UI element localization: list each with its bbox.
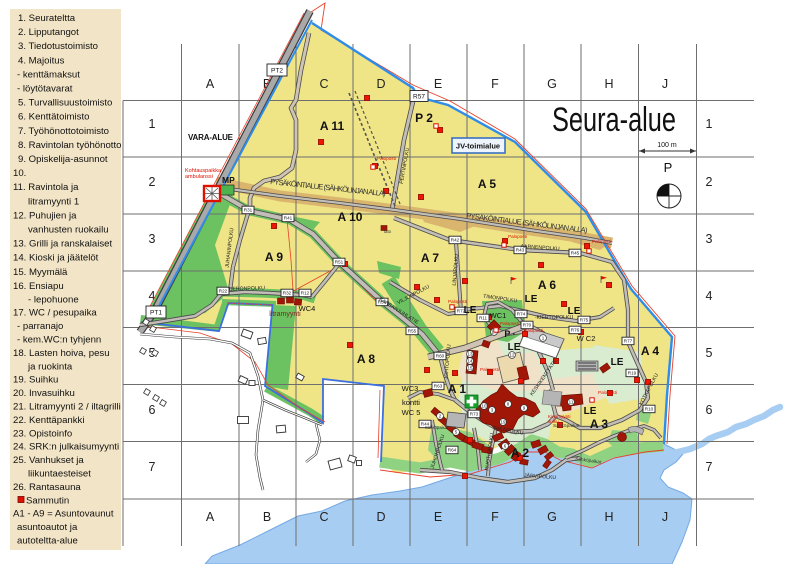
svg-text:vanhusten ruokailu: vanhusten ruokailu: [28, 225, 109, 236]
svg-text:VARA-ALUE: VARA-ALUE: [188, 133, 234, 142]
svg-text:R32: R32: [283, 291, 292, 296]
svg-text:R70: R70: [523, 323, 532, 328]
svg-text:PT2: PT2: [271, 67, 283, 74]
svg-text:ja ruokinta: ja ruokinta: [27, 361, 73, 372]
svg-text:C: C: [319, 77, 328, 91]
svg-text:R75: R75: [580, 318, 589, 323]
svg-text:A 1: A 1: [448, 382, 467, 396]
svg-text:D: D: [376, 77, 385, 91]
svg-text:G: G: [547, 77, 557, 91]
svg-text:1. Seurateltta: 1. Seurateltta: [18, 13, 76, 24]
svg-text:R11: R11: [479, 316, 488, 321]
svg-text:E: E: [434, 77, 442, 91]
svg-text:7: 7: [706, 460, 713, 474]
svg-text:2. Lipputangot: 2. Lipputangot: [18, 27, 79, 38]
svg-text:15: 15: [467, 366, 473, 371]
svg-text:2: 2: [706, 175, 713, 189]
svg-text:Paloposti: Paloposti: [500, 321, 519, 326]
svg-text:litramyynti 1: litramyynti 1: [28, 196, 79, 207]
svg-text:Paloposti: Paloposti: [598, 390, 617, 395]
svg-text:R12: R12: [301, 291, 310, 296]
svg-text:7. Työhönottotoimisto: 7. Työhönottotoimisto: [18, 126, 109, 137]
svg-text:A 4: A 4: [641, 344, 660, 358]
svg-text:Sähköpaikat: Sähköpaikat: [425, 425, 449, 430]
svg-text:21. Litramyynti 2 / iltagrilli: 21. Litramyynti 2 / iltagrilli: [13, 402, 121, 413]
svg-text:19. Suihku: 19. Suihku: [13, 375, 58, 386]
svg-text:Paloposti: Paloposti: [592, 239, 611, 244]
svg-text:- kem.WC:n tyhjenn: - kem.WC:n tyhjenn: [17, 335, 101, 346]
svg-text:19: 19: [500, 420, 506, 425]
svg-text:R64: R64: [448, 448, 457, 453]
svg-text:R74: R74: [517, 312, 526, 317]
svg-text:14: 14: [467, 359, 473, 364]
svg-text:WC1: WC1: [490, 311, 507, 320]
svg-text:A 5: A 5: [478, 177, 497, 191]
svg-text:Sähköpaikat: Sähköpaikat: [553, 423, 580, 429]
svg-text:F: F: [491, 510, 499, 524]
svg-text:R63: R63: [434, 384, 443, 389]
svg-text:Paloposti: Paloposti: [448, 299, 467, 304]
svg-text:R60: R60: [436, 354, 445, 359]
svg-text:3: 3: [149, 232, 156, 246]
svg-text:- löytötavarat: - löytötavarat: [17, 84, 73, 95]
svg-text:P ·: P ·: [504, 329, 515, 339]
svg-text:26. Rantasauna: 26. Rantasauna: [13, 482, 81, 493]
svg-text:6. Kenttätoimisto: 6. Kenttätoimisto: [18, 112, 89, 123]
svg-text:9. Opiskelija-asunnot: 9. Opiskelija-asunnot: [18, 154, 108, 165]
svg-text:A 6: A 6: [538, 278, 557, 292]
svg-text:JV-toimialue: JV-toimialue: [456, 142, 500, 151]
svg-text:B: B: [263, 510, 271, 524]
svg-text:Paloposti: Paloposti: [524, 328, 543, 333]
svg-text:A 2: A 2: [511, 446, 530, 460]
svg-text:MP: MP: [222, 175, 235, 185]
svg-text:4: 4: [706, 289, 713, 303]
svg-text:A: A: [206, 510, 215, 524]
svg-text:·KIERTOPOLKU: ·KIERTOPOLKU: [535, 315, 574, 321]
svg-text:8. Ravintolan työhönotto: 8. Ravintolan työhönotto: [18, 140, 121, 151]
svg-text:- kenttämaksut: - kenttämaksut: [17, 69, 80, 80]
svg-text:R45: R45: [571, 251, 580, 256]
svg-text:12. Puhujien ja: 12. Puhujien ja: [13, 210, 77, 221]
svg-text:H: H: [604, 77, 613, 91]
svg-text:P: P: [664, 160, 673, 175]
svg-text:1: 1: [149, 117, 156, 131]
svg-text:13. Grilli ja ranskalaiset: 13. Grilli ja ranskalaiset: [13, 239, 113, 250]
svg-text:4. Majoitus: 4. Majoitus: [18, 55, 65, 66]
svg-text:R22: R22: [219, 289, 228, 294]
svg-text:WC4: WC4: [299, 304, 316, 313]
svg-text:20. Invasuihku: 20. Invasuihku: [13, 388, 75, 399]
svg-text:LE: LE: [525, 294, 538, 305]
svg-text:R73: R73: [470, 412, 479, 417]
svg-text:H: H: [604, 510, 613, 524]
svg-text:A 9: A 9: [265, 250, 284, 264]
svg-text:R42: R42: [451, 238, 460, 243]
svg-text:11: 11: [569, 400, 574, 405]
svg-text:litramyynti: litramyynti: [269, 311, 301, 318]
svg-text:14. Kioski ja jäätelöt: 14. Kioski ja jäätelöt: [13, 253, 99, 264]
svg-text:24. SRK:n julkaisumyynti: 24. SRK:n julkaisumyynti: [13, 442, 119, 453]
svg-text:12: 12: [509, 353, 515, 358]
svg-text:E: E: [434, 510, 442, 524]
svg-text:kontti: kontti: [402, 398, 420, 407]
svg-text:A: A: [206, 77, 215, 91]
svg-text:7: 7: [149, 460, 156, 474]
svg-text:R77: R77: [624, 339, 633, 344]
svg-text:A 8: A 8: [357, 352, 376, 366]
svg-text:J: J: [662, 510, 668, 524]
svg-text:WC 5: WC 5: [402, 408, 421, 417]
svg-text:R55: R55: [408, 329, 417, 334]
svg-text:18. Lasten hoiva, pesu: 18. Lasten hoiva, pesu: [13, 348, 110, 359]
svg-text:WC3: WC3: [402, 384, 419, 393]
svg-text:autoteltta-alue: autoteltta-alue: [17, 536, 78, 547]
svg-text:6: 6: [149, 403, 156, 417]
svg-text:10.: 10.: [13, 168, 26, 179]
svg-text:5. Turvallisuustoimisto: 5. Turvallisuustoimisto: [18, 98, 112, 109]
svg-text:R19: R19: [628, 371, 637, 376]
svg-text:4: 4: [149, 289, 156, 303]
svg-text:A 11: A 11: [320, 119, 345, 133]
svg-text:D: D: [376, 510, 385, 524]
svg-text:10: 10: [481, 404, 487, 409]
svg-text:EERONPOLKU: EERONPOLKU: [229, 285, 265, 292]
svg-text:23. Opistoinfo: 23. Opistoinfo: [13, 428, 72, 439]
svg-text:LE: LE: [611, 357, 624, 368]
svg-text:Paloposti: Paloposti: [508, 234, 527, 239]
svg-text:ambulanssi: ambulanssi: [185, 174, 213, 180]
svg-text:tato: tato: [384, 229, 392, 234]
svg-text:25. Vanhukset ja: 25. Vanhukset ja: [13, 455, 84, 466]
svg-text:- parranajo: - parranajo: [17, 321, 63, 332]
svg-text:2: 2: [149, 175, 156, 189]
svg-text:16. Ensiapu: 16. Ensiapu: [13, 281, 64, 292]
svg-text:asuntoautot ja: asuntoautot ja: [17, 522, 78, 533]
svg-text:R10: R10: [645, 407, 654, 412]
svg-text:F: F: [491, 77, 499, 91]
svg-text:R57: R57: [413, 93, 425, 100]
svg-text:13: 13: [467, 352, 473, 357]
svg-text:LE: LE: [464, 305, 477, 316]
svg-text:liikuntaesteiset: liikuntaesteiset: [28, 469, 91, 480]
svg-text:LE: LE: [584, 406, 597, 417]
svg-text:Paloposti: Paloposti: [377, 156, 396, 161]
svg-text:P 2: P 2: [415, 111, 433, 125]
svg-text:PT1: PT1: [150, 309, 162, 316]
svg-text:R31: R31: [244, 208, 253, 213]
svg-text:6: 6: [706, 403, 713, 417]
svg-text:22. Kenttäpankki: 22. Kenttäpankki: [13, 415, 84, 426]
svg-text:R51: R51: [335, 260, 344, 265]
svg-text:3: 3: [706, 232, 713, 246]
svg-text:17. WC / pesupaika: 17. WC / pesupaika: [13, 308, 97, 319]
svg-text:Sammutin: Sammutin: [26, 495, 69, 506]
svg-text:LE: LE: [508, 342, 521, 353]
svg-text:R76: R76: [571, 328, 580, 333]
svg-text:J: J: [662, 77, 668, 91]
svg-text:A 3: A 3: [590, 417, 609, 431]
svg-text:1: 1: [706, 117, 713, 131]
svg-text:R41: R41: [284, 216, 293, 221]
svg-text:A 7: A 7: [421, 251, 440, 265]
svg-text:Seura-alue: Seura-alue: [552, 101, 676, 139]
svg-text:5: 5: [706, 346, 713, 360]
svg-text:G: G: [547, 510, 557, 524]
svg-text:A 10: A 10: [338, 210, 363, 224]
svg-text:C: C: [319, 510, 328, 524]
svg-text:Paloposti: Paloposti: [480, 367, 499, 372]
svg-text:100 m: 100 m: [657, 142, 677, 149]
svg-text:11. Ravintola ja: 11. Ravintola ja: [13, 182, 79, 193]
svg-text:3. Tiedotustoimisto: 3. Tiedotustoimisto: [18, 41, 98, 52]
svg-text:A1 - A9 = Asuntovaunut: A1 - A9 = Asuntovaunut: [13, 509, 114, 520]
svg-text:W C2: W C2: [577, 334, 596, 343]
svg-text:15. Myymälä: 15. Myymälä: [13, 267, 68, 278]
svg-text:- lepohuone: - lepohuone: [28, 294, 79, 305]
